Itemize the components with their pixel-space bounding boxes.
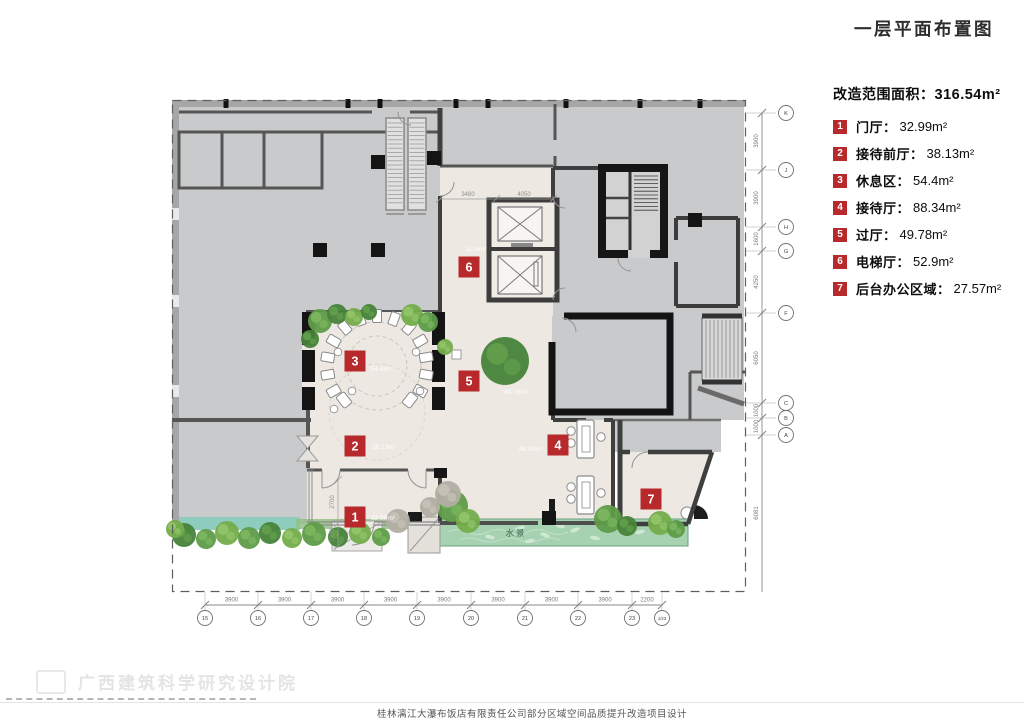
room-marker-number: 3 <box>352 355 359 369</box>
watermark: 广西建筑科学研究设计院 <box>36 669 298 694</box>
dimension-label: 3900 <box>331 598 345 604</box>
stairwell <box>598 164 668 258</box>
dimension-label: 3900 <box>754 134 760 148</box>
legend-value-7: 27.57m² <box>954 281 1002 296</box>
legend-header-label: 改造范围面积： <box>833 86 935 102</box>
dimension-label: 3900 <box>491 598 505 604</box>
grid-bubble-label: 19 <box>414 616 420 622</box>
dimension-label: 3900 <box>754 191 760 205</box>
dimension-label: 4250 <box>754 275 760 289</box>
dimension-label: 3900 <box>278 598 292 604</box>
legend-badge-7: 7 <box>833 282 847 296</box>
dimension-label: 6050 <box>754 351 760 365</box>
grid-bubble-label: C <box>784 401 788 407</box>
legend-value-1: 32.99m² <box>900 119 948 134</box>
legend-badge-2: 2 <box>833 147 847 161</box>
legend-value-3: 54.4m² <box>913 173 953 188</box>
dimension-label: 1600 <box>754 232 760 246</box>
room-marker-number: 5 <box>466 375 473 389</box>
room-marker-number: 7 <box>648 493 655 507</box>
grid-bubble-label: K <box>784 111 788 117</box>
legend-value-2: 38.13m² <box>927 146 975 161</box>
room-area-label: 32.99m² <box>371 515 396 522</box>
page-title: 一层平面布置图 <box>854 16 994 41</box>
grid-bubble-label: 20 <box>468 616 474 622</box>
legend-name-4: 接待厅： <box>856 198 910 217</box>
grid-bubble-label: 21 <box>522 616 528 622</box>
room-marker-number: 2 <box>352 440 359 454</box>
legend-item-4: 4 接待厅： 88.34m² <box>833 198 1024 217</box>
dim-label: 3480 <box>461 192 475 198</box>
dim-label: 4050 <box>517 192 531 198</box>
legend-badge-3: 3 <box>833 174 847 188</box>
dimension-label: 3900 <box>437 598 451 604</box>
legend-badge-6: 6 <box>833 255 847 269</box>
dimension-label: 3900 <box>598 598 612 604</box>
dimension-label: 1000 <box>754 419 760 433</box>
dim-label: 2700 <box>330 495 336 509</box>
room-marker-number: 6 <box>466 261 473 275</box>
legend-item-7: 7 后台办公区域： 27.57m² <box>833 279 1024 298</box>
grid-bubble-label: 18 <box>361 616 367 622</box>
legend-badge-4: 4 <box>833 201 847 215</box>
grid-bubble-label: 15 <box>202 616 208 622</box>
legend-name-6: 电梯厅： <box>856 252 910 271</box>
room-area-label: 54.4m² <box>371 366 392 373</box>
dimension-label: 2200 <box>640 598 654 604</box>
legend-value-6: 52.9m² <box>913 254 953 269</box>
legend-item-2: 2 接待前厅： 38.13m² <box>833 144 1024 163</box>
grid-bubble-label: 22 <box>575 616 581 622</box>
water-feature-label: 水景 <box>505 528 526 538</box>
room-area-label: 52.9m² <box>466 246 487 253</box>
legend-name-7: 后台办公区域： <box>856 279 951 298</box>
footer-rule <box>0 702 1024 703</box>
legend-name-1: 门厅： <box>856 117 897 136</box>
grid-bubble-label: 1/23 <box>658 616 667 621</box>
legend-item-1: 1 门厅： 32.99m² <box>833 117 1024 136</box>
elevators <box>489 200 557 300</box>
legend: 改造范围面积：316.54m² 1 门厅： 32.99m² 2 接待前厅： 38… <box>833 84 1024 306</box>
legend-value-4: 88.34m² <box>913 200 961 215</box>
dimension-label: 1000 <box>754 403 760 417</box>
room-marker-7: 7 <box>641 489 662 510</box>
grid-bubble-label: B <box>784 416 788 422</box>
legend-item-6: 6 电梯厅： 52.9m² <box>833 252 1024 271</box>
legend-name-5: 过厅： <box>856 225 897 244</box>
legend-item-5: 5 过厅： 49.78m² <box>833 225 1024 244</box>
watermark-logo-icon <box>36 670 66 694</box>
legend-badge-1: 1 <box>833 120 847 134</box>
dim-label: 1500 <box>330 528 336 542</box>
grid-bubble-label: H <box>784 225 788 231</box>
room-area-label: 49.78m² <box>504 389 529 396</box>
legend-header-value: 316.54m² <box>935 87 1001 103</box>
legend-item-3: 3 休息区： 54.4m² <box>833 171 1024 190</box>
dimension-label: 3900 <box>225 598 239 604</box>
legend-badge-5: 5 <box>833 228 847 242</box>
grid-bubble-label: 16 <box>255 616 261 622</box>
room-marker-number: 1 <box>352 511 359 525</box>
dimension-label: 6081 <box>754 506 760 520</box>
legend-header: 改造范围面积：316.54m² <box>833 84 1024 104</box>
room-area-label: 38.13m² <box>372 444 397 451</box>
grid-bubble-label: F <box>784 311 788 317</box>
dimension-label: 3900 <box>545 598 559 604</box>
grid-bubble-label: A <box>784 433 788 439</box>
legend-name-3: 休息区： <box>856 171 910 190</box>
watermark-rule <box>6 698 256 700</box>
watermark-text: 广西建筑科学研究设计院 <box>78 669 298 694</box>
grid-bubble-label: J <box>785 168 788 174</box>
grid-bubble-label: 23 <box>629 616 635 622</box>
grid-bubble-label: 17 <box>308 616 314 622</box>
footer-caption: 桂林漓江大瀑布饭店有限责任公司部分区域空间品质提升改造项目设计 <box>40 706 1024 720</box>
large-room <box>552 316 670 412</box>
legend-name-2: 接待前厅： <box>856 144 924 163</box>
legend-value-5: 49.78m² <box>900 227 948 242</box>
room-area-label: 88.34m² <box>519 446 544 453</box>
dimension-label: 3900 <box>384 598 398 604</box>
grid-bubble-label: G <box>784 249 788 255</box>
room-marker-number: 4 <box>555 439 562 453</box>
